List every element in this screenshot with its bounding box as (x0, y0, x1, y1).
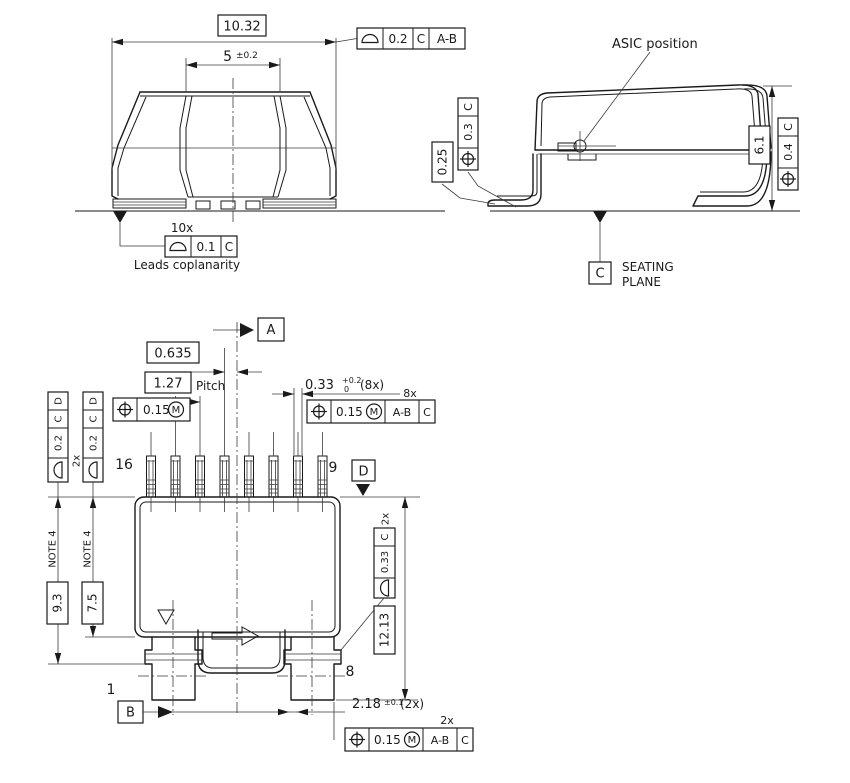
fcf-left1-ref1: C (54, 415, 65, 422)
fcf-left1-ref2: D (54, 397, 65, 405)
datum-a-label: A (267, 323, 276, 338)
dim-9-3-value: 9.3 (51, 593, 65, 612)
package-outline-drawing: 10.32 0.2 C A-B 5 ±0.2 10x 0.1 C Leads c… (0, 0, 850, 779)
seating-datum-triangle-side (593, 211, 607, 223)
fcf-profile-left-pair: D C 0.2 D C 0.2 2x (48, 392, 103, 482)
dim-height-value: 6.1 (753, 135, 767, 154)
dim-offset-value: 0.635 (154, 347, 191, 362)
fcf-leads-value: 0.15 (336, 405, 363, 419)
seating-plane-caption-2: PLANE (622, 275, 661, 289)
drawing-canvas: 10.32 0.2 C A-B 5 ±0.2 10x 0.1 C Leads c… (0, 0, 850, 779)
side-view: ASIC position 0.25 C 0.3 6.1 (432, 37, 800, 289)
coplanarity-caption: Leads coplanarity (134, 258, 240, 272)
side-left-lead (488, 154, 541, 206)
datum-b-label: B (126, 706, 135, 721)
pin-8-label: 8 (346, 664, 355, 680)
dim-standoff-group: 0.25 C 0.3 (432, 98, 516, 207)
dim-center-tol: ±0.2 (236, 51, 258, 61)
fcf-left-value: 0.3 (462, 123, 475, 141)
pin-16-label: 16 (115, 457, 133, 473)
bottom-view: A 0.635 1.27 Pitch 0.15 M (47, 318, 473, 751)
fcf-top-ref2: A-B (437, 32, 457, 46)
side-package-body (535, 85, 762, 160)
fcf-tab-value: 0.33 (380, 551, 391, 573)
qty-8x-label: 8x (403, 387, 417, 400)
material-modifier: M (408, 735, 417, 746)
datum-d: D (340, 460, 420, 497)
datum-d-label: D (358, 465, 368, 480)
seating-plane-datum: C SEATING PLANE (589, 211, 674, 289)
dim-lead-width-qty: (8x) (360, 378, 384, 392)
bottom-package-body (135, 497, 340, 673)
dim-lead-width-tol-lower: 0 (344, 385, 349, 394)
qty-2x-left-label: 2x (72, 455, 83, 467)
fcf-pitch: 0.15 M (113, 398, 190, 421)
fcf-right-value: 0.4 (782, 143, 795, 161)
fcf-bottom-ref2: C (461, 734, 469, 747)
front-view: 10.32 0.2 C A-B 5 ±0.2 10x 0.1 C Leads c… (75, 15, 465, 272)
fcf-top-value: 0.2 (388, 32, 407, 46)
dim-standoff-value: 0.25 (436, 149, 450, 176)
fcf-bottom-ref1: A-B (431, 734, 449, 747)
dim-overall-width-value: 10.32 (223, 20, 260, 35)
fcf-top-ref1: C (417, 32, 425, 46)
dim-body-length-group: NOTE 4 NOTE 4 9.3 7.5 (47, 482, 145, 664)
note4-label-2: NOTE 4 (83, 530, 94, 567)
fcf-right-ref: C (782, 123, 795, 131)
material-modifier: M (370, 407, 379, 418)
seating-plane-caption-1: SEATING (622, 260, 674, 274)
asic-position-marker: ASIC position (558, 37, 698, 161)
dim-tab-value: 2.18 (352, 697, 381, 712)
dim-lead-width-value: 0.33 (305, 378, 334, 393)
pin-9-label: 9 (329, 460, 338, 476)
datum-c-label: C (595, 267, 604, 282)
dim-pitch-value: 1.27 (154, 377, 183, 392)
fcf-left1-value: 0.2 (54, 435, 65, 451)
note4-label-1: NOTE 4 (48, 530, 59, 567)
fcf-bottom-value: 0.15 (374, 733, 401, 747)
qty-2x-bottom-label: 2x (440, 714, 454, 727)
dim-7-5-value: 7.5 (86, 593, 100, 612)
front-package-body (112, 78, 336, 225)
dim-center-value: 5 (223, 49, 232, 65)
fcf-left2-value: 0.2 (89, 435, 100, 451)
pin-1-label: 1 (107, 682, 116, 698)
dim-tab-qty: (2x) (400, 697, 424, 711)
asic-position-label: ASIC position (612, 37, 698, 52)
fcf-coplanarity-value: 0.1 (196, 240, 215, 254)
fcf-left2-ref2: D (89, 397, 100, 405)
qty-2x-tab-label: 2x (381, 513, 392, 525)
fcf-left2-ref1: C (89, 415, 100, 422)
leads-count-label: 10x (171, 221, 193, 235)
coplanarity-callout: 10x 0.1 C Leads coplanarity (113, 211, 240, 272)
front-lead-feet (113, 199, 336, 209)
fcf-leads-ref2: C (423, 406, 431, 419)
material-modifier: M (172, 405, 181, 416)
seating-datum-triangle-front (113, 211, 127, 223)
fcf-left-ref: C (462, 103, 475, 111)
dim-lead-width-tol-upper: +0.2 (342, 376, 361, 385)
pitch-caption: Pitch (196, 379, 225, 393)
datum-a: A (213, 318, 284, 341)
fcf-leads-ref1: A-B (393, 406, 411, 419)
direction-arrow (212, 627, 258, 645)
fcf-coplanarity-ref: C (225, 240, 233, 254)
dim-12-13-value: 12.13 (378, 613, 392, 647)
fcf-position-bottom: 2x 0.15 M A-B C (345, 714, 473, 751)
fcf-tab-ref: C (380, 533, 391, 540)
pin1-marker-triangle (158, 610, 174, 624)
fcf-profile-top: 0.2 C A-B (336, 28, 465, 49)
fcf-pitch-value: 0.15 (143, 403, 170, 417)
